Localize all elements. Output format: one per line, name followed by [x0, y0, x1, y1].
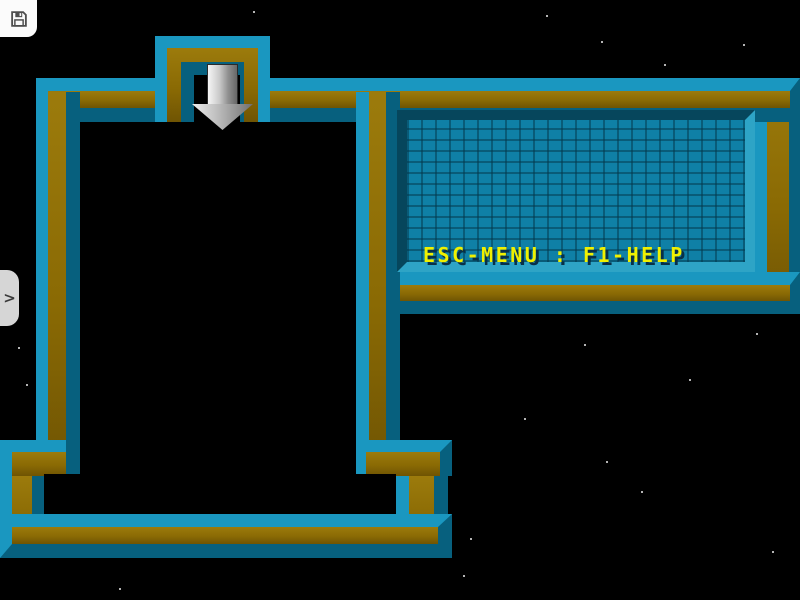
- star: [546, 15, 548, 17]
- star: [641, 491, 643, 493]
- star: [756, 333, 758, 335]
- wall-right-step-elbow: [366, 440, 452, 476]
- star: [26, 384, 28, 386]
- well-interior-right-extra[interactable]: [356, 474, 396, 514]
- star: [772, 551, 774, 553]
- star: [584, 344, 586, 346]
- well-interior[interactable]: [80, 122, 356, 514]
- star: [470, 538, 472, 540]
- well-interior-left-extra[interactable]: [44, 474, 80, 514]
- save-button[interactable]: [0, 0, 37, 37]
- help-text: ESC-MENU : F1-HELP: [423, 243, 685, 267]
- spawn-arrow-shaft[interactable]: [207, 64, 238, 106]
- star: [601, 41, 603, 43]
- star: [689, 379, 691, 381]
- star: [253, 11, 255, 13]
- star: [743, 44, 745, 46]
- star: [463, 575, 465, 577]
- star: [524, 418, 526, 420]
- star: [664, 64, 666, 66]
- wall-left: [36, 92, 80, 476]
- star: [119, 588, 121, 590]
- wall-bottom: [0, 514, 452, 558]
- wall-right: [356, 92, 400, 476]
- star: [606, 461, 608, 463]
- drawer-tab[interactable]: >: [0, 270, 19, 326]
- wall-panel-bottom: [356, 272, 800, 314]
- star: [18, 347, 20, 349]
- wall-left-step-elbow: [0, 440, 66, 476]
- game-screen: Player:123Level:1 - SimpleScore:0Mult:1X…: [0, 0, 800, 600]
- floppy-disk-icon: [8, 8, 30, 30]
- chevron-right-icon: >: [3, 289, 16, 307]
